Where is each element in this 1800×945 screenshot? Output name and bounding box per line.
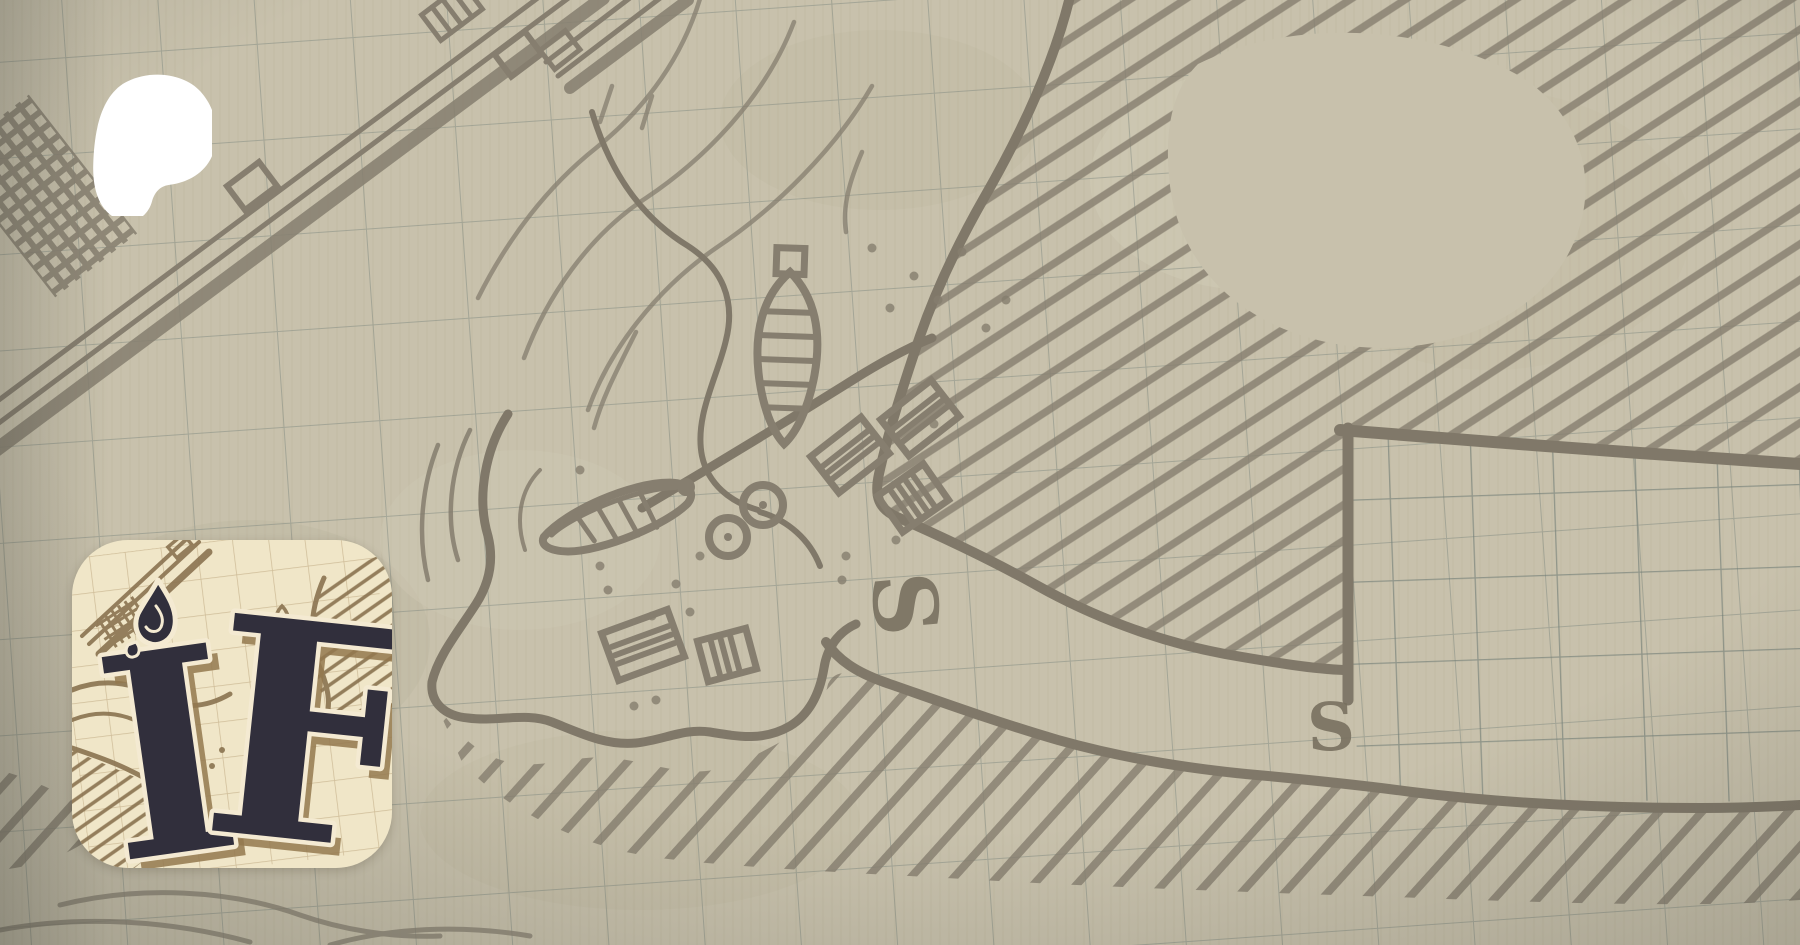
patreon-blob	[93, 75, 212, 216]
patreon-banner: S S	[0, 0, 1800, 945]
patreon-logo-icon	[79, 68, 212, 216]
avatar-monogram: I F I F	[81, 548, 392, 868]
creator-avatar[interactable]: s I F I F	[72, 540, 392, 868]
